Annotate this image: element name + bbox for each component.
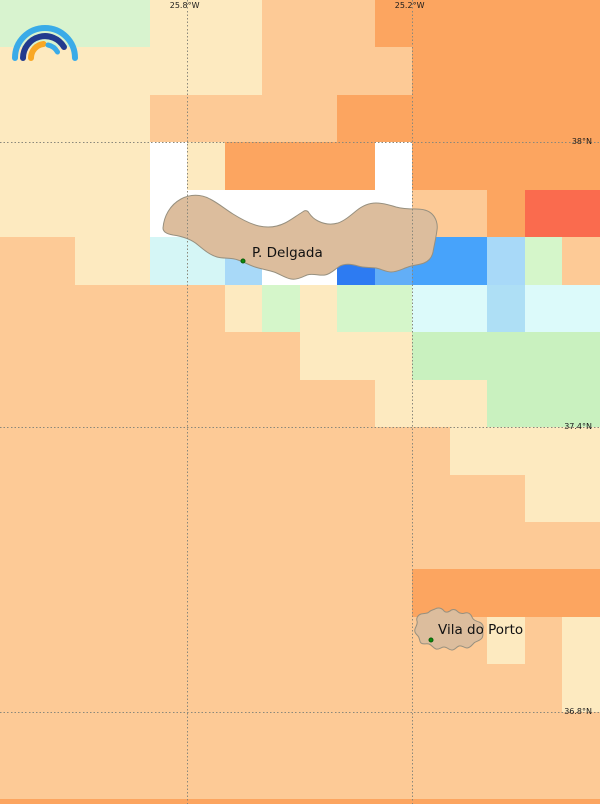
cities-layer: P. DelgadaVila do Porto: [0, 0, 600, 804]
logo-inner-arc: [31, 44, 44, 58]
city-label: Vila do Porto: [438, 622, 523, 638]
city-marker: [429, 638, 434, 643]
weather-map: 25.8°W25.2°W38°N37.4°N36.8°N P. DelgadaV…: [0, 0, 600, 804]
city-marker: [241, 259, 246, 264]
city-label: P. Delgada: [252, 245, 323, 261]
rainbow-logo: [6, 6, 84, 62]
logo-accent-arc: [48, 45, 58, 52]
